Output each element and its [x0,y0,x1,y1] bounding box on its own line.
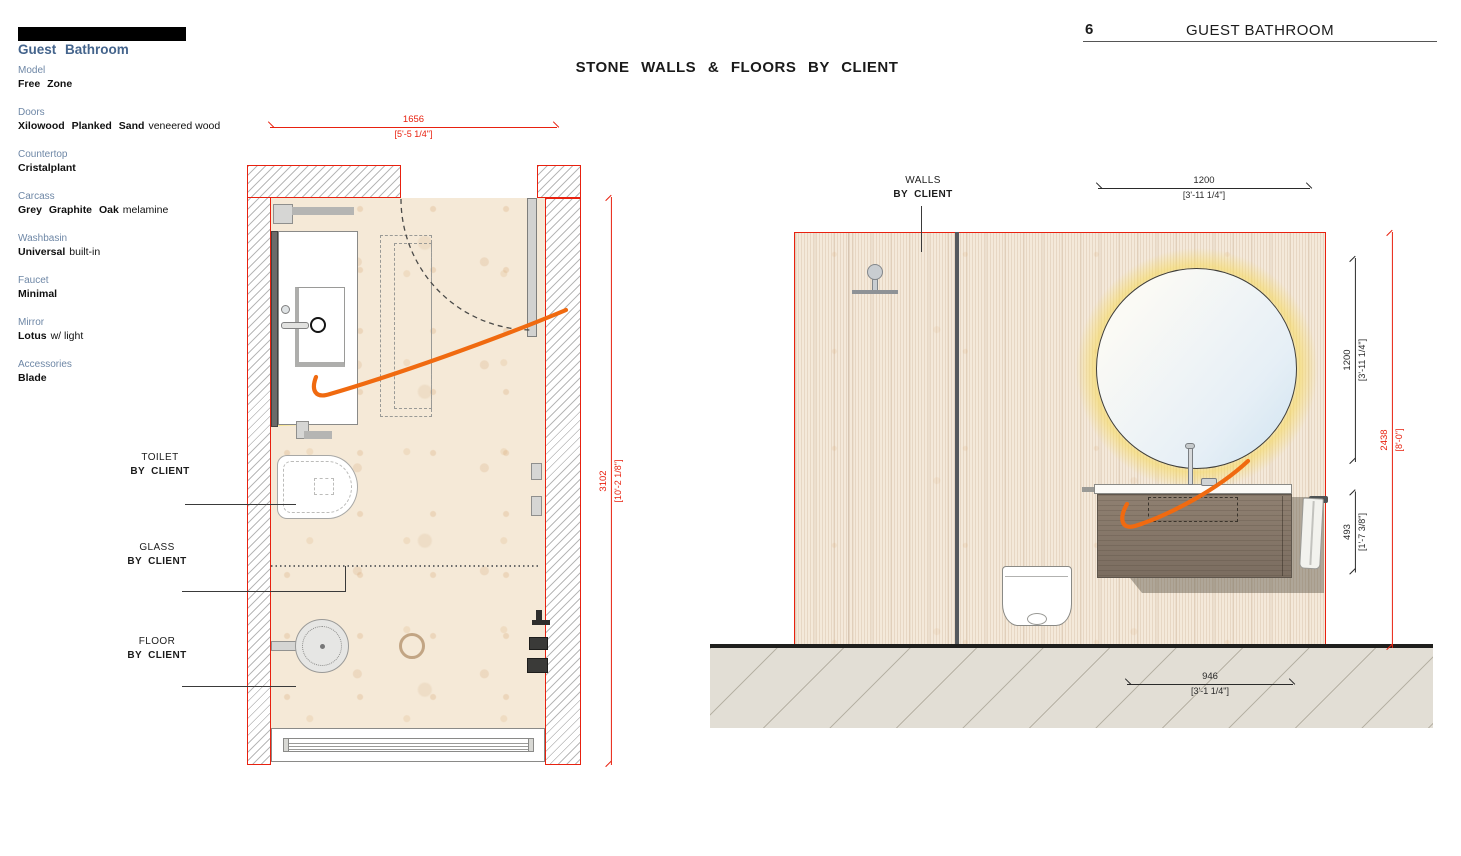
towel-crease [1309,501,1314,565]
elev-countertop [1094,484,1292,494]
toilet-base-oval [1027,613,1047,625]
vanity-height-dimension: 493 [1'-7 3/8"] [1343,492,1367,573]
callout-walls: WALLS BY CLIENT [868,174,978,202]
vanity-panel-joint [1282,496,1284,576]
elev-toilet [1002,566,1072,626]
elev-faucet-stem [1188,447,1193,485]
elev-faucet-head [1185,443,1195,449]
toilet-seat-line [1005,576,1068,577]
elev-floor-band [710,648,1433,728]
drawing-sheet: Guest Bathroom Model Free Zone Doors Xil… [0,0,1461,856]
leader-walls [921,206,922,252]
basin-dashed-outline [1148,497,1238,522]
counter-bracket [1082,487,1094,492]
wall-height-dimension: 2438 [8'-0"] [1380,232,1404,648]
mirror-height-dimension: 1200 [3'-11 1/4"] [1343,258,1367,462]
elev-faucet-handle [1201,478,1217,486]
mirror-width-dimension: 1200 [3'-11 1/4"] [1098,176,1310,200]
vanity-width-dimension: 946 [3'-1 1/4"] [1127,672,1293,696]
hanging-towel [1299,497,1324,569]
